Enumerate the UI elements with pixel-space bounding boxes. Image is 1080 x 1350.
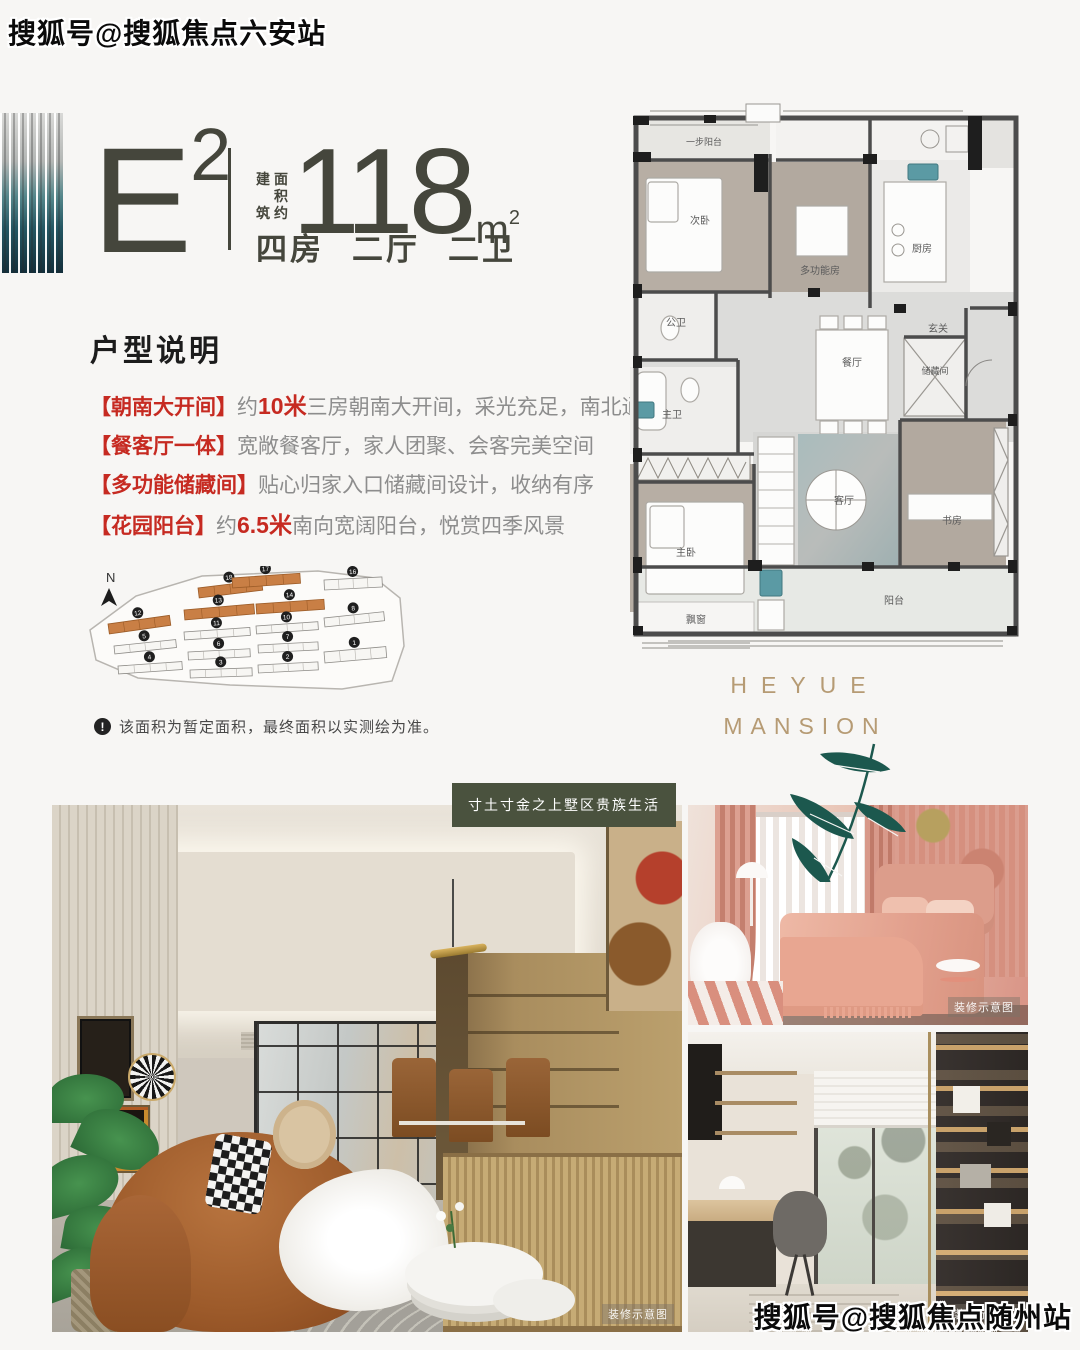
svg-text:餐厅: 餐厅 xyxy=(842,356,862,369)
svg-text:飘窗: 飘窗 xyxy=(686,613,706,626)
desk-lamp xyxy=(719,1176,745,1189)
description-pre: 约 xyxy=(216,515,237,538)
site-plan: 181716131412811105671432 N xyxy=(80,566,420,711)
building-number: 17 xyxy=(262,566,270,573)
description-item: 【多功能储藏间】贴心归家入口储藏间设计，收纳有序 xyxy=(90,474,630,497)
photo-caption: 装修示意图 xyxy=(602,1304,674,1324)
flower xyxy=(455,1202,464,1211)
striped-rug xyxy=(688,981,783,1025)
area-char: 积 xyxy=(274,189,288,203)
brand-logo: HEYUE MANSION xyxy=(690,672,920,740)
ac-unit-box xyxy=(746,104,780,122)
unit-letter: E xyxy=(92,116,188,284)
books xyxy=(953,1086,980,1113)
roller-shade xyxy=(814,1071,936,1128)
sofa-arm xyxy=(90,1195,191,1332)
exclamation-icon: ! xyxy=(94,718,111,735)
svg-text:阳台: 阳台 xyxy=(884,594,904,607)
checkered-pillow xyxy=(204,1133,273,1215)
study-photo: 装修示意图 xyxy=(688,1032,1028,1332)
svg-text:次卧: 次卧 xyxy=(690,214,710,227)
description-lbl: 【餐客厅一体】 xyxy=(90,435,237,458)
slogan-badge: 寸土寸金之上墅区贵族生活 xyxy=(452,783,676,827)
building-number: 12 xyxy=(134,610,143,618)
floor-lamp-stem xyxy=(750,878,753,926)
header-divider xyxy=(228,148,231,250)
svg-text:客厅: 客厅 xyxy=(834,494,854,507)
building-number: 11 xyxy=(213,620,221,627)
floor-plan: 一步阳台 次卧 多功能房 厨房 公卫 玄关 餐厅 储藏间 主卫 主卧 客厅 书房… xyxy=(608,102,1033,657)
brass-frame xyxy=(928,1032,931,1332)
dining-chair xyxy=(449,1069,493,1143)
pendant-cord xyxy=(452,879,454,948)
right-artwork xyxy=(606,821,682,1011)
brand-line2: MANSION xyxy=(690,713,920,740)
desk-body xyxy=(688,1221,776,1287)
kitchen-counter-strip xyxy=(776,118,972,160)
svg-text:多功能房: 多功能房 xyxy=(800,264,840,277)
area-char: 面 xyxy=(274,172,288,186)
watermark-top-left: 搜狐号@搜狐焦点六安站 xyxy=(8,12,326,52)
area-char: 建 xyxy=(256,172,270,186)
description-lbl: 【朝南大开间】 xyxy=(90,396,237,419)
description-txt: 贴心归家入口储藏间设计，收纳有序 xyxy=(258,474,594,497)
area-label-col2: 面 积 约 xyxy=(274,172,288,220)
svg-text:公卫: 公卫 xyxy=(666,318,686,329)
wood-shelves xyxy=(715,1059,797,1161)
note-text: 该面积为暂定面积，最终面积以实测绘为准。 xyxy=(119,716,439,737)
svg-text:主卫: 主卫 xyxy=(662,409,682,421)
description-txt: 宽敞餐客厅，家人团聚、会客完美空间 xyxy=(237,435,594,458)
description-pre: 约 xyxy=(237,396,258,419)
area-char: 筑 xyxy=(256,206,270,220)
living-room-photo: 装修示意图 xyxy=(52,805,682,1332)
description-list: 【朝南大开间】约10米三房朝南大开间，采光充足，南北通透【餐客厅一体】宽敞餐客厅… xyxy=(90,394,630,539)
area-label: 建 筑 面 积 约 xyxy=(256,172,288,220)
description-lbl: 【花园阳台】 xyxy=(90,515,216,538)
north-label: N xyxy=(106,570,115,585)
building-number: 3 xyxy=(219,659,223,666)
wardrobe-hatch xyxy=(634,454,750,480)
cream-pillow xyxy=(273,1100,336,1169)
description-item: 【花园阳台】约6.5米南向宽阔阳台，悦赏四季风景 xyxy=(90,513,630,538)
bamboo-leaves-icon xyxy=(762,742,922,882)
building-number: 13 xyxy=(214,597,222,605)
office-chair xyxy=(773,1191,827,1257)
description-txt: 南向宽阔阳台，悦赏四季风景 xyxy=(292,515,565,538)
svg-text:主卧: 主卧 xyxy=(676,546,696,559)
brand-line1: HEYUE xyxy=(690,672,920,699)
svg-text:储藏间: 储藏间 xyxy=(921,365,948,376)
description-item: 【餐客厅一体】宽敞餐客厅，家人团聚、会客完美空间 xyxy=(90,435,630,458)
svg-text:一步阳台: 一步阳台 xyxy=(686,136,722,147)
blanket xyxy=(780,937,923,1016)
area-char: 约 xyxy=(274,206,288,220)
dining-table xyxy=(399,1121,525,1125)
flower-leaf xyxy=(446,1224,454,1232)
watermark-bottom-right: 搜狐号@搜狐焦点随州站 xyxy=(754,1296,1072,1336)
layout-tag-rooms: 四房 xyxy=(256,224,324,269)
blanket-fringe xyxy=(824,1007,912,1018)
area-label-col1: 建 筑 xyxy=(256,172,270,220)
description-item: 【朝南大开间】约10米三房朝南大开间，采光充足，南北通透 xyxy=(90,394,630,419)
svg-text:厨房: 厨房 xyxy=(912,242,932,255)
description-hl: 6.5米 xyxy=(237,512,292,538)
books xyxy=(984,1203,1011,1227)
building-number: 16 xyxy=(349,569,357,576)
books xyxy=(960,1164,991,1188)
svg-text:书房: 书房 xyxy=(942,514,962,527)
building-number: 14 xyxy=(286,592,294,600)
svg-text:玄关: 玄关 xyxy=(928,322,948,335)
area-note: ! 该面积为暂定面积，最终面积以实测绘为准。 xyxy=(94,716,439,737)
description-title: 户型说明 xyxy=(90,326,630,370)
layout-tags: 四房 二厅 二卫 xyxy=(256,224,516,269)
description-lbl: 【多功能储藏间】 xyxy=(90,474,258,497)
north-arrow-icon xyxy=(101,588,117,606)
description-hl: 10米 xyxy=(258,393,307,419)
layout-tag-baths: 二卫 xyxy=(448,224,516,269)
poster-page: 搜狐号@搜狐焦点六安站 搜狐号@搜狐焦点随州站 E2 建 筑 面 积 约 118… xyxy=(0,0,1080,1350)
unit-description: 户型说明 【朝南大开间】约10米三房朝南大开间，采光充足，南北通透【餐客厅一体】… xyxy=(90,326,630,555)
unit-exponent: 2 xyxy=(190,113,231,196)
unit-code: E2 xyxy=(92,118,231,275)
books xyxy=(987,1122,1011,1146)
building-number: 10 xyxy=(283,614,291,622)
fluted-glass-deco xyxy=(0,113,63,273)
layout-tag-halls: 二厅 xyxy=(352,224,420,269)
photo-caption: 装修示意图 xyxy=(948,997,1020,1017)
